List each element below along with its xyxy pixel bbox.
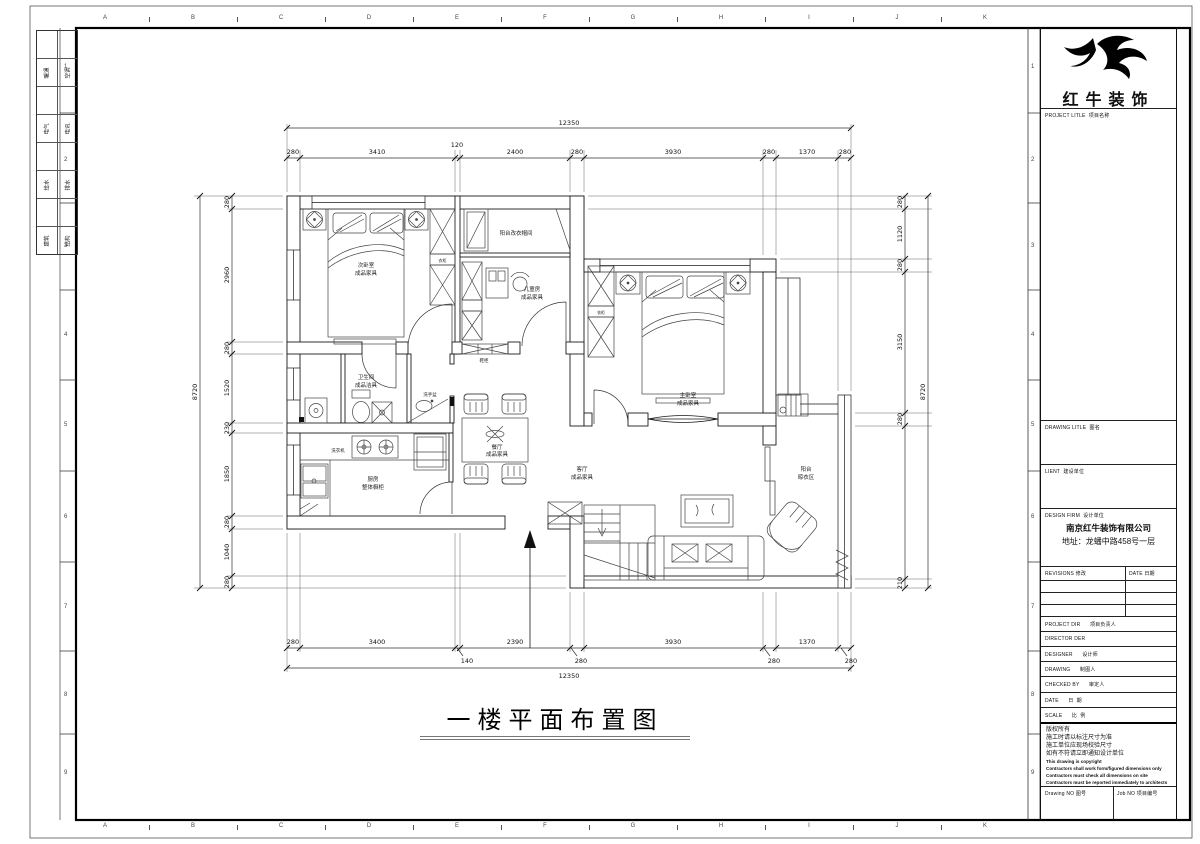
drawing-no-header: Drawing NO 图号: [1045, 790, 1086, 797]
svg-text:280: 280: [896, 196, 904, 208]
grid-letter-bottom: B: [191, 823, 195, 829]
company-address: 地址：龙蟠中路458号一层: [1041, 536, 1176, 547]
room-label-bedroom2: 次卧室: [358, 261, 375, 269]
signature-table: 暖通空调电气电讯给水排水建筑结构: [36, 30, 78, 255]
grid-letter-bottom: F: [543, 823, 547, 829]
signature-row: 电气电讯: [37, 115, 77, 143]
field-row-line: [1041, 676, 1176, 677]
svg-text:2390: 2390: [507, 638, 524, 646]
field-row-line: [1041, 692, 1176, 693]
signature-cell: 排水: [58, 171, 78, 198]
grid-tick-bottom: [589, 825, 590, 830]
svg-text:整体橱柜: 整体橱柜: [362, 483, 385, 491]
signature-cell: [37, 31, 58, 58]
grid-tick-top: [149, 17, 150, 22]
company-name: 南京红牛装饰有限公司: [1041, 522, 1176, 534]
solid-wall-segments: [450, 397, 454, 406]
signature-row: 建筑结构: [37, 227, 77, 254]
grid-letter-bottom: H: [719, 823, 723, 829]
svg-text:成品家具: 成品家具: [571, 473, 594, 481]
grid-tick-bottom: [413, 825, 414, 830]
note-line-en: Contractors must be reported immediately…: [1046, 779, 1172, 786]
svg-text:140: 140: [461, 657, 473, 665]
svg-text:晾衣区: 晾衣区: [798, 473, 815, 481]
dim-total-top: 12350: [559, 119, 580, 127]
signature-cell: [37, 199, 58, 226]
room-label-basin: 洗手盆: [423, 391, 437, 398]
grid-letter-bottom: G: [631, 823, 636, 829]
grid-tick-top: [325, 17, 326, 22]
room-label-cloakroom: 阳台改衣帽间: [499, 229, 532, 237]
field-label-project-dir: PROJECT DIR 项目负责人: [1045, 621, 1116, 628]
grid-number-left: 1: [64, 64, 67, 70]
client-header: LIENT 建设单位: [1045, 468, 1084, 475]
notes-block: 版权所有施工时请以标注尺寸为准施工单位应现场校验尺寸如有不符请立即通知设计单位T…: [1046, 726, 1172, 786]
room-label-kitchen: 厨房: [367, 475, 379, 483]
signature-cell: [37, 87, 58, 114]
grid-number-right: 5: [1031, 422, 1034, 428]
svg-text:3930: 3930: [665, 148, 682, 156]
field-label-checked-by: CHECKED BY 审定人: [1045, 681, 1105, 688]
room-label-kidsroom: 儿童房: [524, 285, 541, 293]
grid-number-left: 8: [64, 692, 67, 698]
brand-name: 红牛装饰: [1041, 86, 1176, 110]
company-logo: [1059, 32, 1159, 90]
svg-text:3400: 3400: [369, 638, 386, 646]
svg-text:3410: 3410: [369, 148, 386, 156]
signature-cell: 给水: [37, 171, 58, 198]
date-column-header: DATE 日期: [1129, 570, 1155, 577]
label-washing-machine: 洗衣机: [331, 447, 345, 454]
signature-cell: 电讯: [58, 115, 78, 142]
svg-text:1370: 1370: [799, 148, 816, 156]
project-title-header: PROJECT LITLE 项目名称: [1045, 112, 1110, 119]
field-label-scale: SCALE 比 例: [1045, 712, 1086, 719]
signature-row: [37, 31, 77, 59]
signature-cell: [58, 87, 78, 114]
grid-letter-bottom: K: [983, 823, 987, 829]
field-row-line: [1041, 616, 1176, 617]
field-label-date: DATE 日 期: [1045, 697, 1082, 704]
title-block: 红牛装饰 PROJECT LITLE 项目名称 DRAWING LITLE 图名…: [1040, 28, 1177, 820]
signature-cell: 结构: [58, 227, 78, 254]
grid-tick-top: [677, 17, 678, 22]
bottom-row-divider: [1113, 786, 1114, 820]
grid-number-left: 9: [64, 770, 67, 776]
svg-text:1850: 1850: [223, 466, 231, 483]
field-label-director-der: DIRECTOR DER: [1045, 636, 1085, 642]
field-row-line: [1041, 707, 1176, 708]
field-row-line: [1041, 661, 1176, 662]
svg-text:成品家具: 成品家具: [521, 293, 544, 301]
svg-text:成品家具: 成品家具: [486, 450, 509, 458]
grid-letter-bottom: C: [279, 823, 283, 829]
svg-text:1370: 1370: [799, 638, 816, 646]
svg-text:280: 280: [287, 148, 299, 156]
grid-letter-top: G: [631, 15, 636, 21]
signature-cell: [58, 199, 78, 226]
svg-text:280: 280: [287, 638, 299, 646]
grid-number-right: 6: [1031, 514, 1034, 520]
svg-text:成品家具: 成品家具: [355, 269, 378, 277]
signature-discipline-label: 建筑: [43, 235, 51, 246]
grid-number-left: 6: [64, 514, 67, 520]
grid-tick-top: [589, 17, 590, 22]
grid-tick-bottom: [325, 825, 326, 830]
svg-text:280: 280: [223, 342, 231, 354]
signature-cell: [37, 143, 58, 170]
grid-tick-top: [941, 17, 942, 22]
svg-text:210: 210: [896, 577, 904, 589]
design-firm-header: DESIGN FIRM 设计单位: [1045, 512, 1104, 519]
grid-letter-bottom: E: [455, 823, 459, 829]
svg-text:280: 280: [575, 657, 587, 665]
dim-total-bottom: 12350: [559, 672, 580, 680]
room-label-living: 客厅: [576, 465, 588, 473]
label-shoe-cabinet: 鞋柜: [480, 357, 489, 364]
svg-text:280: 280: [571, 148, 583, 156]
grid-letter-top: K: [983, 15, 987, 21]
note-line-en: Contractors must check all dimensions on…: [1046, 772, 1172, 779]
field-row-line: [1041, 646, 1176, 647]
grid-number-right: 3: [1031, 243, 1034, 249]
grid-tick-top: [237, 17, 238, 22]
svg-text:3150: 3150: [896, 334, 904, 351]
svg-text:280: 280: [839, 148, 851, 156]
grid-tick-bottom: [501, 825, 502, 830]
svg-text:成品洁具: 成品洁具: [355, 381, 378, 389]
grid-number-right: 9: [1031, 770, 1034, 776]
signature-cell: 暖通: [37, 59, 58, 86]
note-line-cn: 施工时请以标注尺寸为准: [1046, 734, 1172, 742]
grid-letter-top: J: [896, 15, 899, 21]
room-label-dining: 餐厅: [491, 443, 503, 451]
svg-text:2400: 2400: [507, 148, 524, 156]
doors: [362, 302, 775, 515]
signature-discipline-label: 给水: [43, 179, 51, 190]
grid-tick-top: [853, 17, 854, 22]
signature-row: 暖通空调: [37, 59, 77, 87]
signature-cell: 电气: [37, 115, 58, 142]
grid-tick-top: [501, 17, 502, 22]
grid-number-left: 4: [64, 332, 67, 338]
grid-letter-top: I: [808, 15, 810, 21]
field-row-line: [1041, 631, 1176, 632]
grid-letter-top: A: [103, 15, 107, 21]
signature-row: [37, 199, 77, 227]
drawing-title-header: DRAWING LITLE 图名: [1045, 424, 1100, 431]
grid-letter-top: C: [279, 15, 283, 21]
signature-discipline-label: 电讯: [63, 123, 71, 134]
grid-tick-bottom: [677, 825, 678, 830]
title-underline-1: [420, 736, 690, 737]
signature-row: [37, 143, 77, 171]
signature-row: 给水排水: [37, 171, 77, 199]
room-label-master: 主卧室: [680, 391, 697, 399]
svg-text:成品家具: 成品家具: [677, 399, 700, 407]
grid-number-left: 5: [64, 422, 67, 428]
label-wardrobe-1: 衣柜: [439, 257, 447, 263]
field-label-drawing: DRAWING 制图人: [1045, 666, 1096, 673]
signature-discipline-label: 电气: [43, 123, 51, 134]
grid-tick-bottom: [765, 825, 766, 830]
svg-text:280: 280: [845, 657, 857, 665]
note-line-cn: 如有不符请立即通知设计单位: [1046, 750, 1172, 758]
note-line-cn: 版权所有: [1046, 726, 1172, 734]
svg-text:230: 230: [223, 422, 231, 434]
grid-letter-bottom: A: [103, 823, 107, 829]
grid-number-left: 7: [64, 604, 67, 610]
grid-tick-top: [765, 17, 766, 22]
signature-discipline-label: 暖通: [43, 67, 51, 78]
grid-letter-top: D: [367, 15, 371, 21]
grid-number-right: 7: [1031, 604, 1034, 610]
svg-text:3930: 3930: [665, 638, 682, 646]
svg-text:120: 120: [451, 141, 463, 149]
svg-text:280: 280: [763, 148, 775, 156]
grid-letter-bottom: D: [367, 823, 371, 829]
grid-number-right: 4: [1031, 332, 1034, 338]
svg-text:280: 280: [896, 413, 904, 425]
signature-discipline-label: 排水: [63, 179, 71, 190]
job-no-header: Job NO 项目编号: [1117, 790, 1158, 797]
drawing-title: 一楼平面布置图: [420, 700, 690, 735]
grid-letter-top: B: [191, 15, 195, 21]
grid-number-right: 8: [1031, 692, 1034, 698]
grid-tick-bottom: [941, 825, 942, 830]
svg-text:2960: 2960: [223, 267, 231, 284]
revisions-header: REVISIONS 修改: [1045, 570, 1086, 577]
note-line-en: Contractors shall work form/figured dime…: [1046, 765, 1172, 772]
grid-number-right: 2: [1031, 157, 1034, 163]
revisions-divider: [1125, 566, 1126, 616]
field-label-designer: DESIGNER 设计师: [1045, 651, 1098, 658]
signature-row: [37, 87, 77, 115]
grid-tick-bottom: [853, 825, 854, 830]
signature-cell: 建筑: [37, 227, 58, 254]
svg-text:280: 280: [896, 259, 904, 271]
svg-text:1520: 1520: [223, 380, 231, 397]
walls: [287, 196, 851, 588]
entry-arrow: [524, 530, 536, 648]
room-label-balcony: 阳台: [800, 465, 812, 473]
svg-text:1120: 1120: [896, 226, 904, 243]
grid-letter-top: F: [543, 15, 547, 21]
title-underline-2: [420, 739, 690, 740]
grid-number-left: 3: [64, 243, 67, 249]
signature-cell: [58, 31, 78, 58]
grid-letter-top: H: [719, 15, 723, 21]
grid-letter-top: E: [455, 15, 459, 21]
label-wardrobe-2: 衣柜: [597, 309, 605, 315]
grid-number-right: 1: [1031, 64, 1034, 70]
svg-text:1040: 1040: [223, 544, 231, 561]
grid-tick-bottom: [237, 825, 238, 830]
grid-letter-bottom: J: [896, 823, 899, 829]
room-label-bathroom: 卫生间: [358, 373, 375, 381]
grid-letter-bottom: I: [808, 823, 810, 829]
grid-tick-bottom: [149, 825, 150, 830]
grid-tick-top: [413, 17, 414, 22]
dim-total-left: 8720: [191, 384, 199, 401]
svg-text:280: 280: [223, 516, 231, 528]
svg-text:280: 280: [223, 576, 231, 588]
dim-total-right: 8720: [919, 384, 927, 401]
svg-text:280: 280: [768, 657, 780, 665]
note-line-en: This drawing is copyright: [1046, 758, 1172, 765]
svg-text:280: 280: [223, 196, 231, 208]
note-line-cn: 施工单位应现场校验尺寸: [1046, 742, 1172, 750]
grid-number-left: 2: [64, 157, 67, 163]
drawing-sheet: 12350 280 3410 120 2400 280 3930 280 137…: [0, 0, 1200, 844]
